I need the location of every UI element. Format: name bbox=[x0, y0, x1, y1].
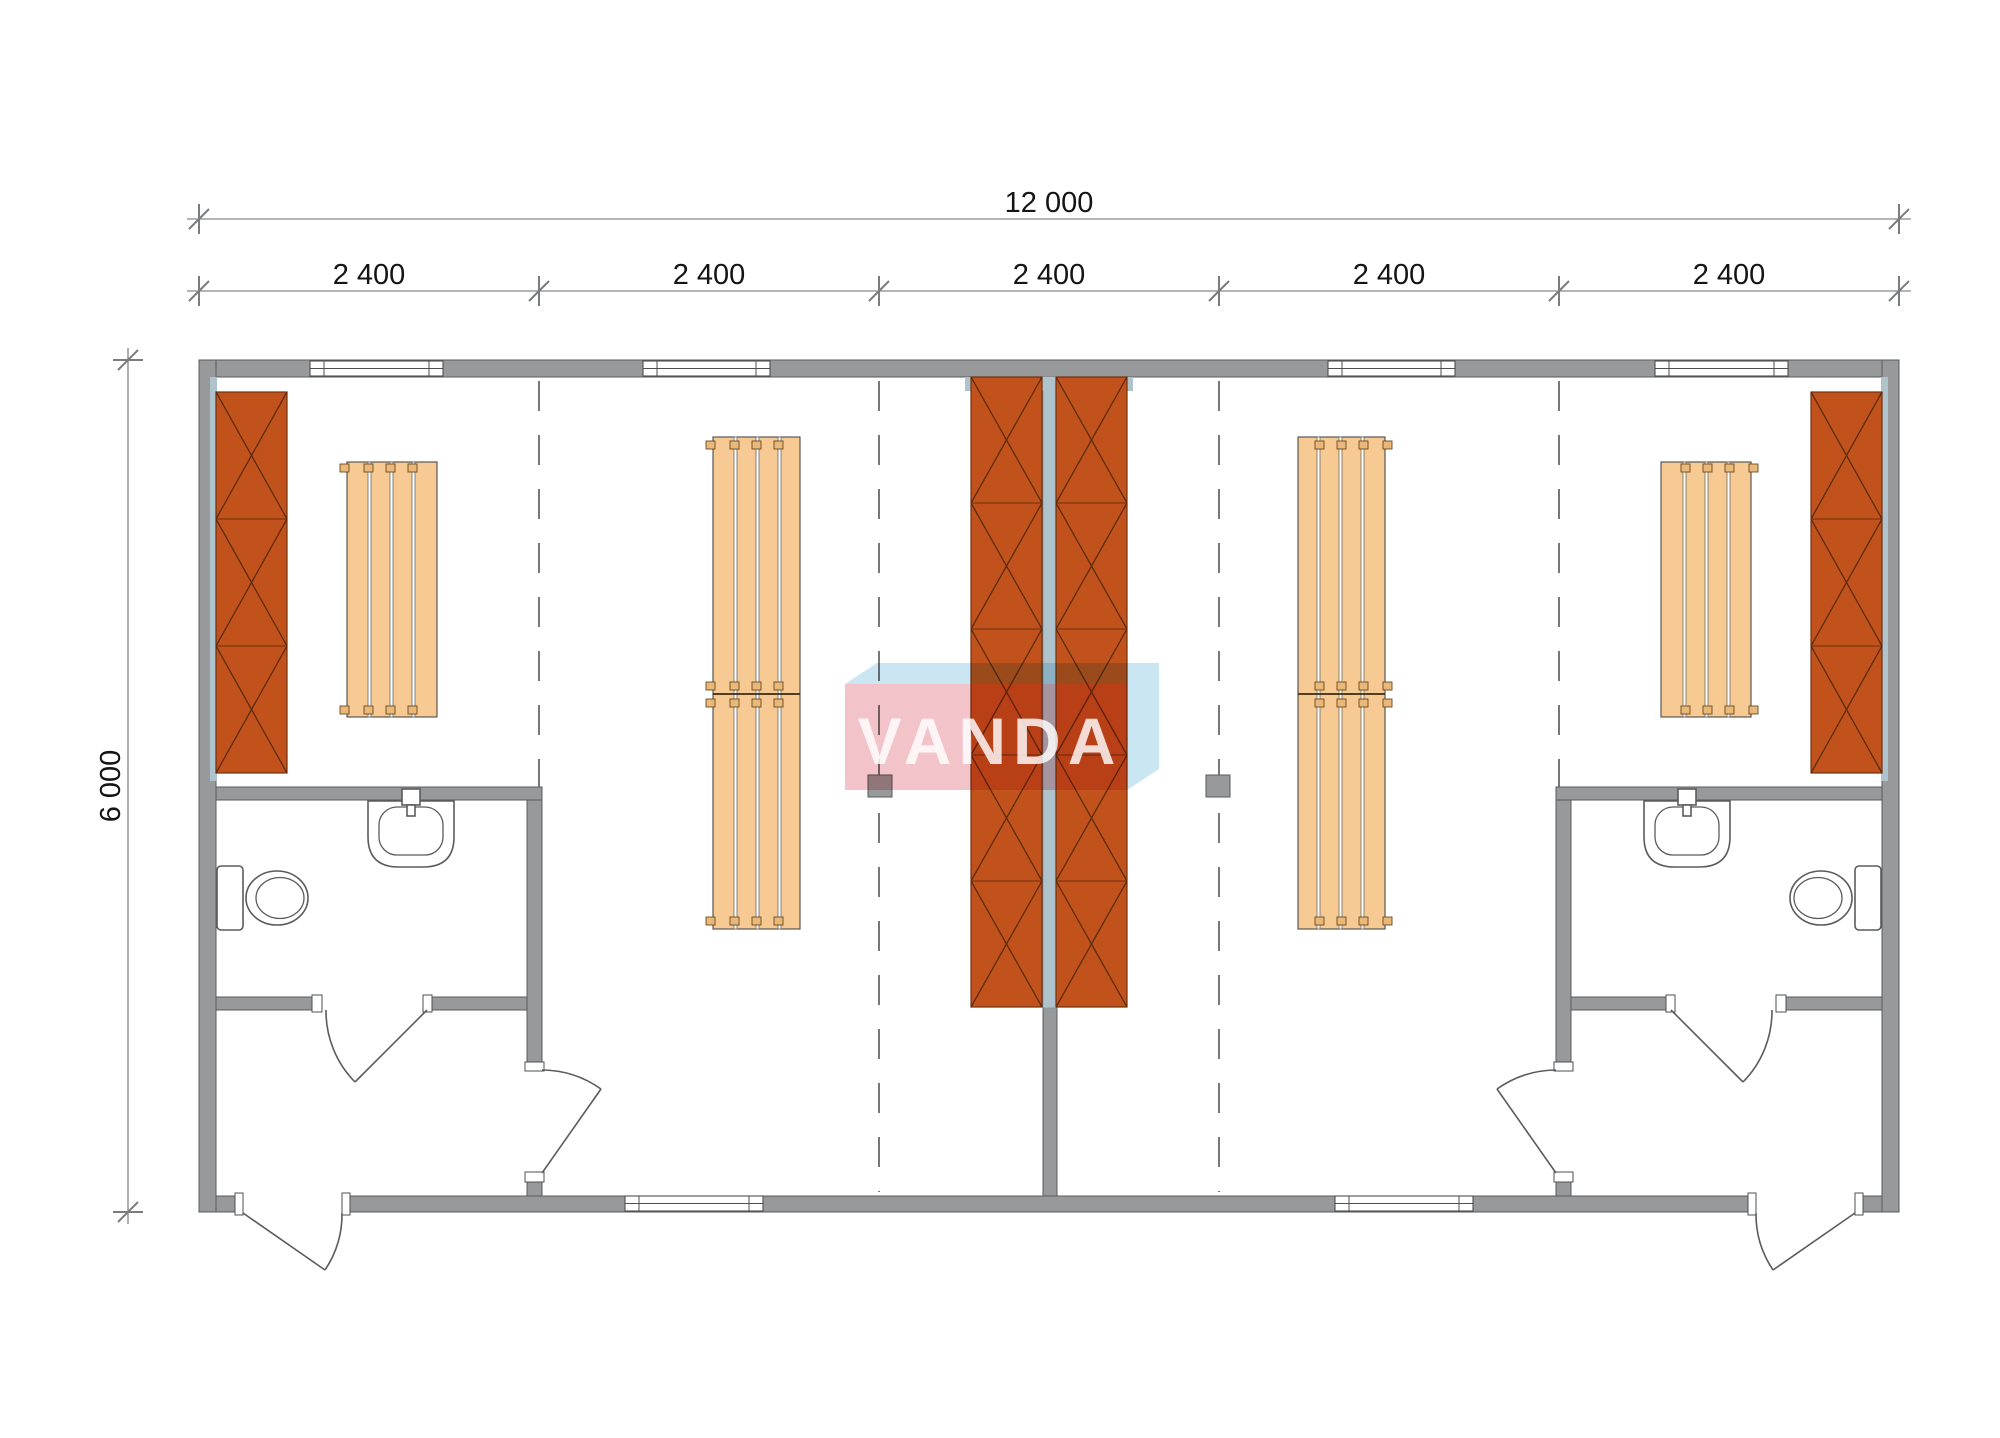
right-unit bbox=[1049, 361, 1888, 1270]
module-dim-label: 2 400 bbox=[1013, 259, 1086, 291]
overall-width-label: 12 000 bbox=[1005, 187, 1094, 219]
vanda-logo: VANDA bbox=[845, 663, 1159, 790]
module-dim-label: 2 400 bbox=[1693, 259, 1766, 291]
left-unit bbox=[210, 361, 1049, 1270]
logo-top-face bbox=[845, 663, 1159, 684]
floor-plan-canvas: 12 000 2 400 2 400 2 400 2 400 2 400 6 0… bbox=[0, 0, 2000, 1438]
dim-overall-height: 6 000 bbox=[95, 348, 143, 1224]
logo-text: VANDA bbox=[858, 704, 1123, 778]
module-dim-label: 2 400 bbox=[673, 259, 746, 291]
wall-bottom bbox=[199, 1196, 1899, 1212]
wall-top bbox=[199, 360, 1899, 377]
module-dim-label: 2 400 bbox=[333, 259, 406, 291]
floor-plan-page: 12 000 2 400 2 400 2 400 2 400 2 400 6 0… bbox=[0, 0, 2000, 1438]
dim-modules: 2 400 2 400 2 400 2 400 2 400 bbox=[187, 259, 1911, 306]
module-dim-label: 2 400 bbox=[1353, 259, 1426, 291]
overall-height-label: 6 000 bbox=[95, 750, 127, 823]
logo-right-face bbox=[1127, 663, 1159, 790]
dim-overall-width: 12 000 bbox=[187, 187, 1911, 234]
